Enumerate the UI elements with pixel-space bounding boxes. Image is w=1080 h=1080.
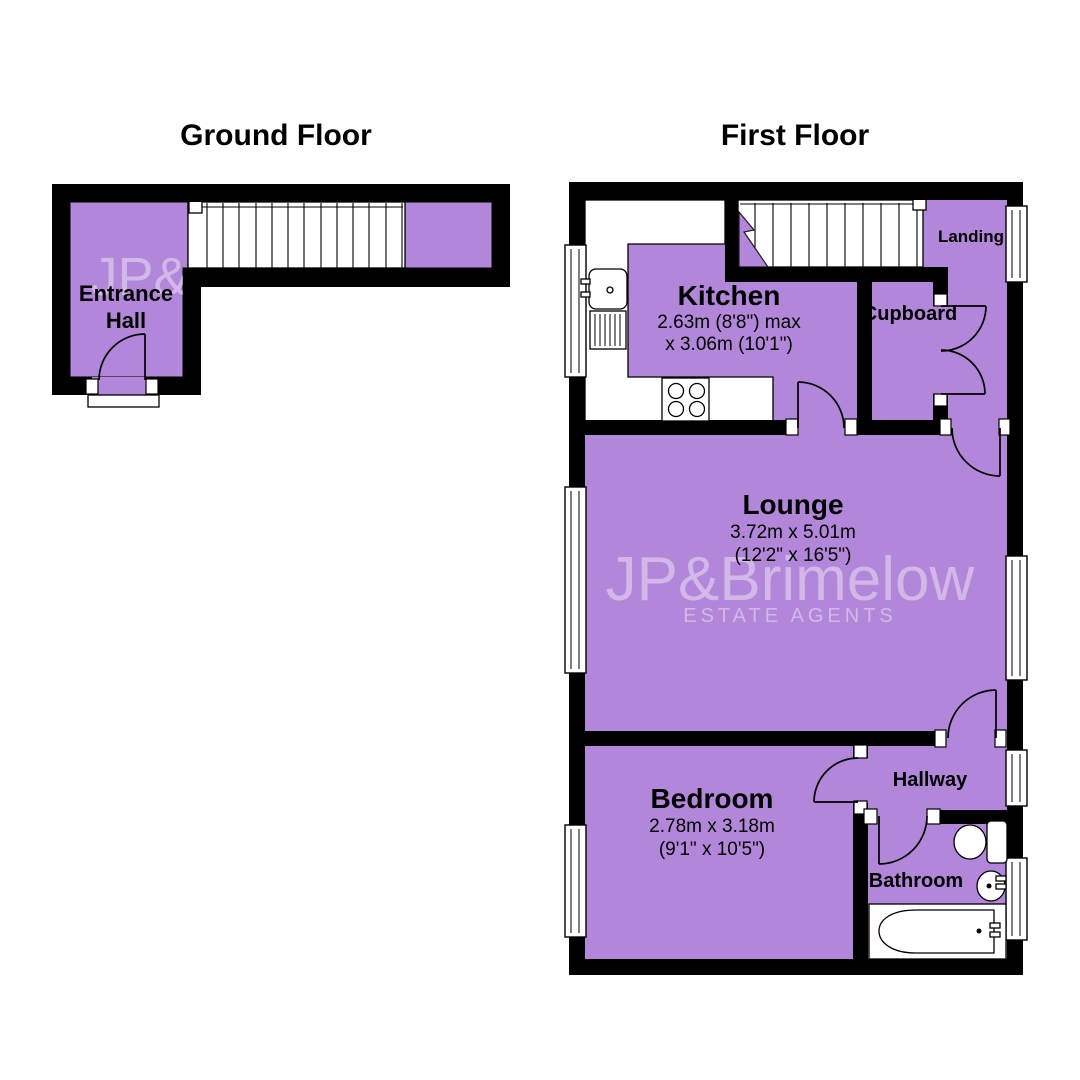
ground-floor-plan: Ground Floor JP& Entranc (52, 119, 510, 407)
door-jamb (86, 379, 98, 394)
landing-label: Landing (938, 227, 1004, 246)
lounge-dim-metric: 3.72m x 5.01m (730, 522, 856, 543)
kitchen-dim-metric: 2.63m (8'8") max (657, 312, 801, 333)
ground-floor-title: Ground Floor (180, 119, 372, 152)
bedroom-dim-imperial: (9'1" x 10'5") (659, 839, 765, 860)
door-jamb (146, 379, 158, 394)
floorplan-page: Ground Floor JP& Entranc (0, 0, 1080, 1080)
bedroom-dim-metric: 2.78m x 3.18m (649, 816, 775, 837)
bathtub-icon (869, 904, 1006, 959)
entrance-doorway-floor (92, 377, 146, 395)
kitchen-label: Kitchen (678, 280, 781, 311)
entrance-hall-label2: Hall (106, 308, 146, 333)
drainer-icon (590, 311, 626, 349)
hallway-window (1006, 750, 1027, 806)
lounge-window-right (1006, 556, 1027, 680)
ground-corridor-room (405, 202, 492, 268)
bathroom-label: Bathroom (869, 870, 963, 892)
ground-stairs (188, 200, 405, 268)
kitchen-window (565, 245, 586, 377)
hob-icon (662, 378, 709, 421)
basin-icon (977, 871, 1006, 901)
lounge-dim-imperial: (12'2" x 16'5") (735, 545, 852, 566)
landing-window (1006, 206, 1027, 282)
entrance-door-sill (88, 395, 159, 407)
floorplan-canvas: Ground Floor JP& Entranc (0, 0, 1080, 1080)
entrance-hall-label: Entrance (79, 281, 173, 306)
first-floor-plan: First Floor JP&Brimelow ESTATE AGENTS (565, 119, 1027, 975)
cupboard-label: Cupboard (863, 303, 957, 325)
watermark-tagline: ESTATE AGENTS (683, 605, 897, 627)
bedroom-window (565, 825, 586, 937)
lounge-label: Lounge (742, 489, 843, 520)
bedroom-label: Bedroom (651, 783, 774, 814)
first-floor-title: First Floor (721, 119, 870, 152)
hallway-label: Hallway (893, 769, 968, 791)
first-stairs (738, 197, 926, 267)
lounge-window-left (565, 487, 586, 673)
kitchen-dim-imperial: x 3.06m (10'1") (665, 334, 793, 355)
bathroom-window (1006, 858, 1027, 940)
